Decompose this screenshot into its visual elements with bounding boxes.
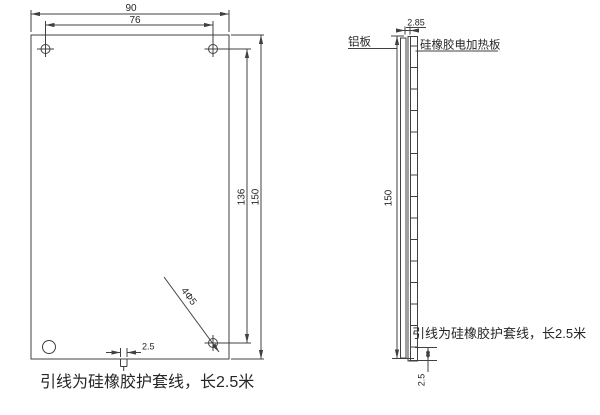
dim-side-150-label: 150 <box>384 189 395 206</box>
hole-top-left <box>37 21 54 57</box>
dimension-thickness-2-85: 2.85 <box>396 18 426 35</box>
aluminum-label-callout: 铝板 <box>348 35 397 49</box>
dim-wire-exit-label: 2.5 <box>417 374 427 387</box>
hole-bottom-left <box>43 341 56 354</box>
holes-callout: 4Φ5 <box>164 277 219 352</box>
front-view: 90 76 136 150 2.5 4Φ <box>31 3 264 391</box>
dim-150-label: 150 <box>251 188 262 205</box>
side-lead-wire-note: 引线为硅橡胶护套线，长2.5米 <box>412 326 586 341</box>
dim-136-label: 136 <box>237 188 248 205</box>
dimension-hole-spacing-76: 76 <box>46 15 214 26</box>
dimension-wire-exit-2-5: 2.5 <box>409 348 437 387</box>
technical-drawing: 90 76 136 150 2.5 4Φ <box>0 0 600 415</box>
heater-label-callout: 硅橡胶电加热板 <box>416 38 501 52</box>
heater-plate <box>408 37 418 362</box>
wire-tab <box>121 359 128 371</box>
dim-76-label: 76 <box>129 15 141 26</box>
dimension-hole-spacing-136: 136 <box>237 49 248 343</box>
holes-callout-label: 4Φ5 <box>178 286 198 308</box>
dim-2-85-label: 2.85 <box>407 18 425 28</box>
heater-element-rungs <box>411 46 418 347</box>
hole-top-right <box>205 21 252 57</box>
dim-90-label: 90 <box>125 3 137 14</box>
dimension-side-height-150: 150 <box>384 36 415 359</box>
aluminum-plate <box>401 38 407 358</box>
front-lead-wire-note: 引线为硅橡胶护套线，长2.5米 <box>40 373 254 391</box>
aluminum-label: 铝板 <box>348 35 371 49</box>
drawing-sheet: 90 76 136 150 2.5 4Φ <box>0 0 600 415</box>
side-view: 2.85 铝板 硅橡胶电加热板 150 引线为硅橡胶护套线，长2.5米 2.5 <box>348 18 586 387</box>
heater-label: 硅橡胶电加热板 <box>420 38 501 52</box>
dimension-wire-tab-2-5: 2.5 <box>106 342 155 358</box>
plate-outline <box>31 35 229 359</box>
dim-2-5-label: 2.5 <box>142 342 155 352</box>
hole-bottom-right <box>205 335 252 351</box>
